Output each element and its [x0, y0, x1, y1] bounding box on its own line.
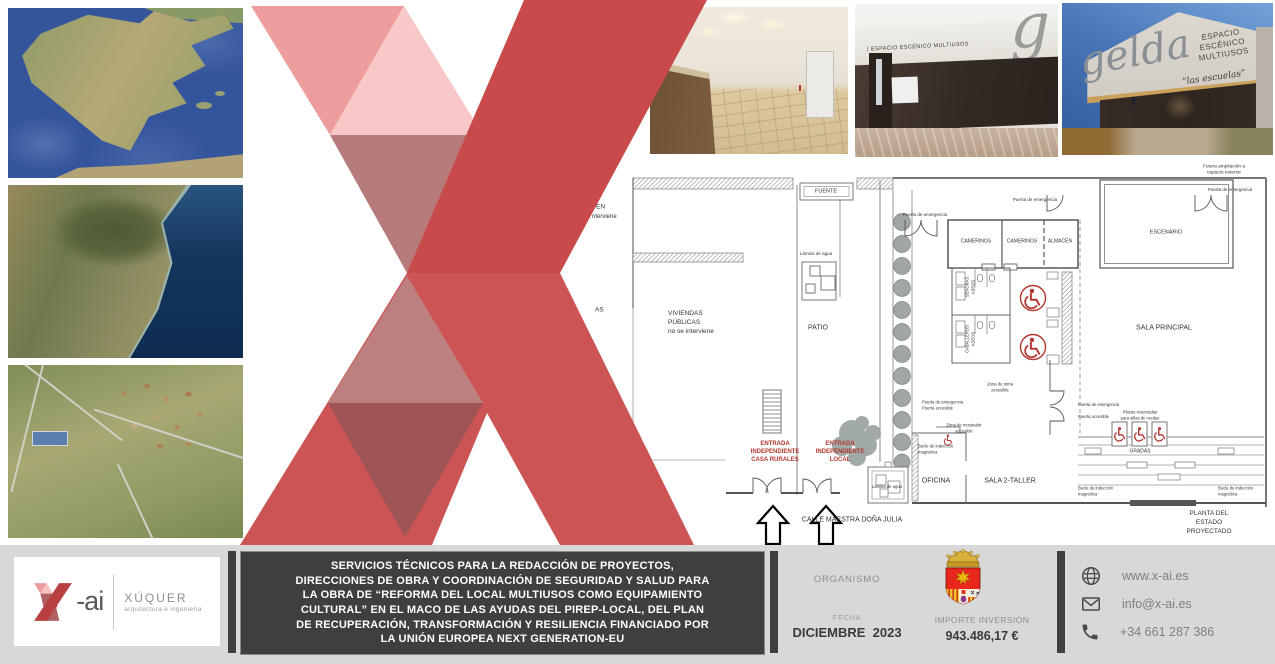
plan-label: CABALLEROS ASEOS: [964, 325, 975, 353]
plan-label: Lámina de agua: [800, 251, 832, 257]
plan-label: PLANTA DEL ESTADO PROYECTADO: [1176, 510, 1242, 536]
plan-label: Puerta de emergencia: [903, 212, 947, 218]
plan-label: Puerta de emergencia: [1208, 187, 1252, 193]
plan-label: nterviene: [592, 213, 617, 221]
mail-icon: [1080, 593, 1102, 615]
plan-label: FUENTE: [815, 188, 837, 195]
plan-label: Bucle de inducción magnética: [1218, 485, 1253, 496]
plan-label: ENTRADA INDEPENDIENTE CASA RURALES: [751, 440, 800, 464]
plan-label: OFICINA: [922, 476, 950, 485]
satellite-map-spain: [8, 8, 243, 178]
project-description: SERVICIOS TÉCNICOS PARA LA REDACCIÓN DE …: [296, 559, 710, 647]
interior-door: [806, 51, 834, 118]
pedestrian: [1132, 97, 1135, 106]
importe-label: IMPORTE INVERSIÓN: [917, 615, 1047, 625]
aerial-map-town: [8, 365, 243, 538]
photo-building-corner: gelda ESPACIO ESCÉNICO MULTIUSOS “las es…: [1062, 3, 1273, 155]
entrance-arrow: [811, 506, 841, 544]
plan-label: SALA 2-TALLER: [984, 476, 1036, 485]
plan-label: Puerta de emergencia Puerta accesible: [922, 399, 963, 410]
importe-block: IMPORTE INVERSIÓN 943.486,17 €: [917, 545, 1047, 664]
plan-label: SEÑORAS ASEOS: [964, 277, 975, 297]
building-sign: | ESPACIO ESCÉNICO MULTIUSOS: [867, 42, 969, 53]
website-url[interactable]: www.x-ai.es: [1122, 569, 1189, 583]
importe-value: 943.486,17 €: [917, 629, 1047, 643]
phone-icon: [1080, 622, 1100, 642]
company-logo: -ai XÚQUER arquitectura e ingeniería: [14, 557, 220, 646]
floor-plan-linework: [630, 165, 1275, 550]
floor-plan: FUENTEPuerta de emergenciaPuerta de emer…: [630, 165, 1275, 550]
plan-label: Futura ampliación a espacio exterior: [1199, 165, 1250, 178]
plan-label: Zona de mostrador accesible: [946, 422, 981, 433]
plan-label: ALMACÉN: [1048, 239, 1072, 246]
footer: -ai XÚQUER arquitectura e ingeniería SER…: [0, 545, 1275, 664]
plan-label: Bucle de inducción magnética: [1078, 485, 1113, 496]
plan-label: Zona de toma accesible: [987, 381, 1013, 392]
contact-block: www.x-ai.es info@x-ai.es +34 661 287 386: [1080, 545, 1275, 664]
plan-label: PATIO: [808, 323, 828, 332]
footer-divider-bar: [1057, 551, 1065, 653]
website-row[interactable]: www.x-ai.es: [1080, 565, 1189, 587]
plan-label: Lámina de agua: [872, 484, 902, 490]
email-row[interactable]: info@x-ai.es: [1080, 593, 1192, 615]
plan-label: GRADAS: [1129, 449, 1150, 456]
plan-label: Puerta de emergencia: [1078, 402, 1119, 408]
plan-label: EN: [596, 204, 605, 213]
project-description-box: SERVICIOS TÉCNICOS PARA LA REDACCIÓN DE …: [240, 551, 765, 655]
photo-interior-hall: [650, 7, 848, 154]
plan-label: Puerta accesible: [1078, 414, 1109, 420]
company-tagline: arquitectura e ingeniería: [124, 606, 202, 613]
plan-label: CALLE MAESTRA DOÑA JULIA: [802, 515, 902, 524]
plan-label: VIVIENDAS PÚBLICAS no se interviene: [668, 310, 714, 336]
photo-facade-entrance: | ESPACIO ESCÉNICO MULTIUSOS g: [855, 4, 1058, 157]
plan-label: Bucle de inducción magnética: [918, 443, 953, 454]
town-buildings: [86, 365, 240, 482]
plan-label: ESCENARIO: [1150, 229, 1182, 236]
footer-divider-bar: [770, 551, 778, 653]
plan-label: CAMERINOS: [961, 239, 991, 246]
entrance-arrow: [758, 506, 788, 544]
footer-divider-bar: [228, 551, 236, 653]
plan-label: AS: [595, 307, 604, 316]
fecha-value: DICIEMBRE 2023: [782, 625, 912, 640]
facade-letter-g: g: [1010, 4, 1050, 63]
plan-label: SALA PRINCIPAL: [1136, 323, 1192, 332]
globe-icon: [1080, 565, 1102, 587]
warehouse-roof: [32, 431, 68, 446]
organismo-block: ORGANISMO FECHA DICIEMBRE 2023: [782, 545, 912, 664]
presentation-board: | ESPACIO ESCÉNICO MULTIUSOS g gelda ESP…: [0, 0, 1275, 664]
fecha-label: FECHA: [782, 613, 912, 622]
phone-row[interactable]: +34 661 287 386: [1080, 622, 1214, 642]
plan-label: CAMERINOS: [1007, 239, 1037, 246]
phone-number[interactable]: +34 661 287 386: [1120, 625, 1214, 639]
plan-label: Puerta de emergencia: [1013, 197, 1057, 203]
company-name: XÚQUER: [124, 591, 187, 605]
fire-extinguisher: [799, 85, 801, 91]
satellite-map-coast: [8, 185, 243, 358]
logo-suffix: -ai: [76, 586, 103, 617]
plan-label: ENTRADA INDEPENDIENTE LOCAL: [816, 440, 865, 464]
email-address[interactable]: info@x-ai.es: [1122, 597, 1192, 611]
plan-label: Plazas reservadas para sillas de ruedas: [1121, 409, 1160, 420]
x-ai-logo-icon: [32, 581, 74, 623]
organismo-label: ORGANISMO: [782, 574, 912, 585]
logo-divider: [113, 574, 114, 630]
